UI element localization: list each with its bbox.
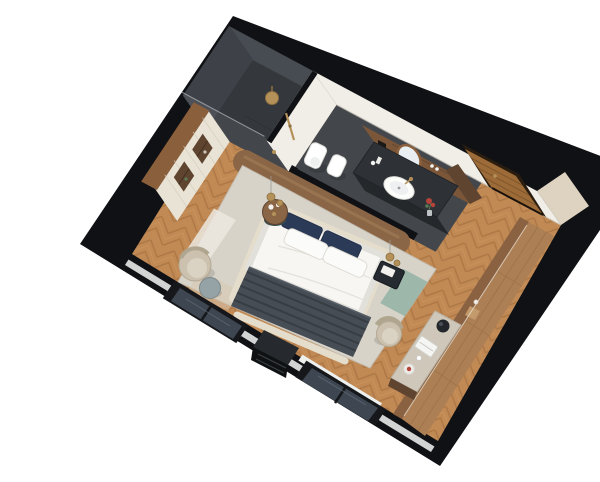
floorplan-canvas	[40, 16, 600, 466]
round-nightstand	[263, 200, 288, 227]
floorplan-3d-render	[40, 16, 600, 466]
door-handle-icon	[493, 174, 497, 178]
cup	[417, 356, 422, 361]
hat	[437, 320, 450, 333]
desk-chair	[374, 319, 402, 347]
